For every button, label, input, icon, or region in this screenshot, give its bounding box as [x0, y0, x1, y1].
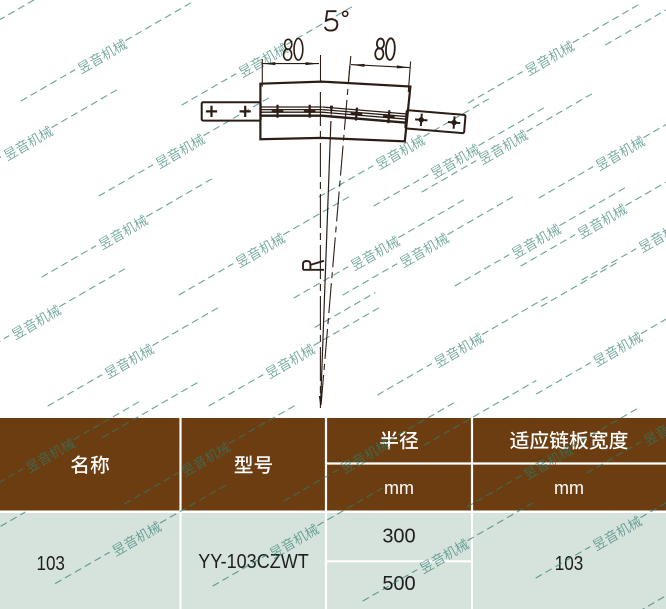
svg-text:103: 103: [36, 553, 65, 575]
svg-text:300: 300: [382, 526, 415, 548]
svg-text:mm: mm: [554, 478, 584, 498]
svg-text:500: 500: [382, 573, 415, 595]
svg-text:mm: mm: [384, 478, 414, 498]
